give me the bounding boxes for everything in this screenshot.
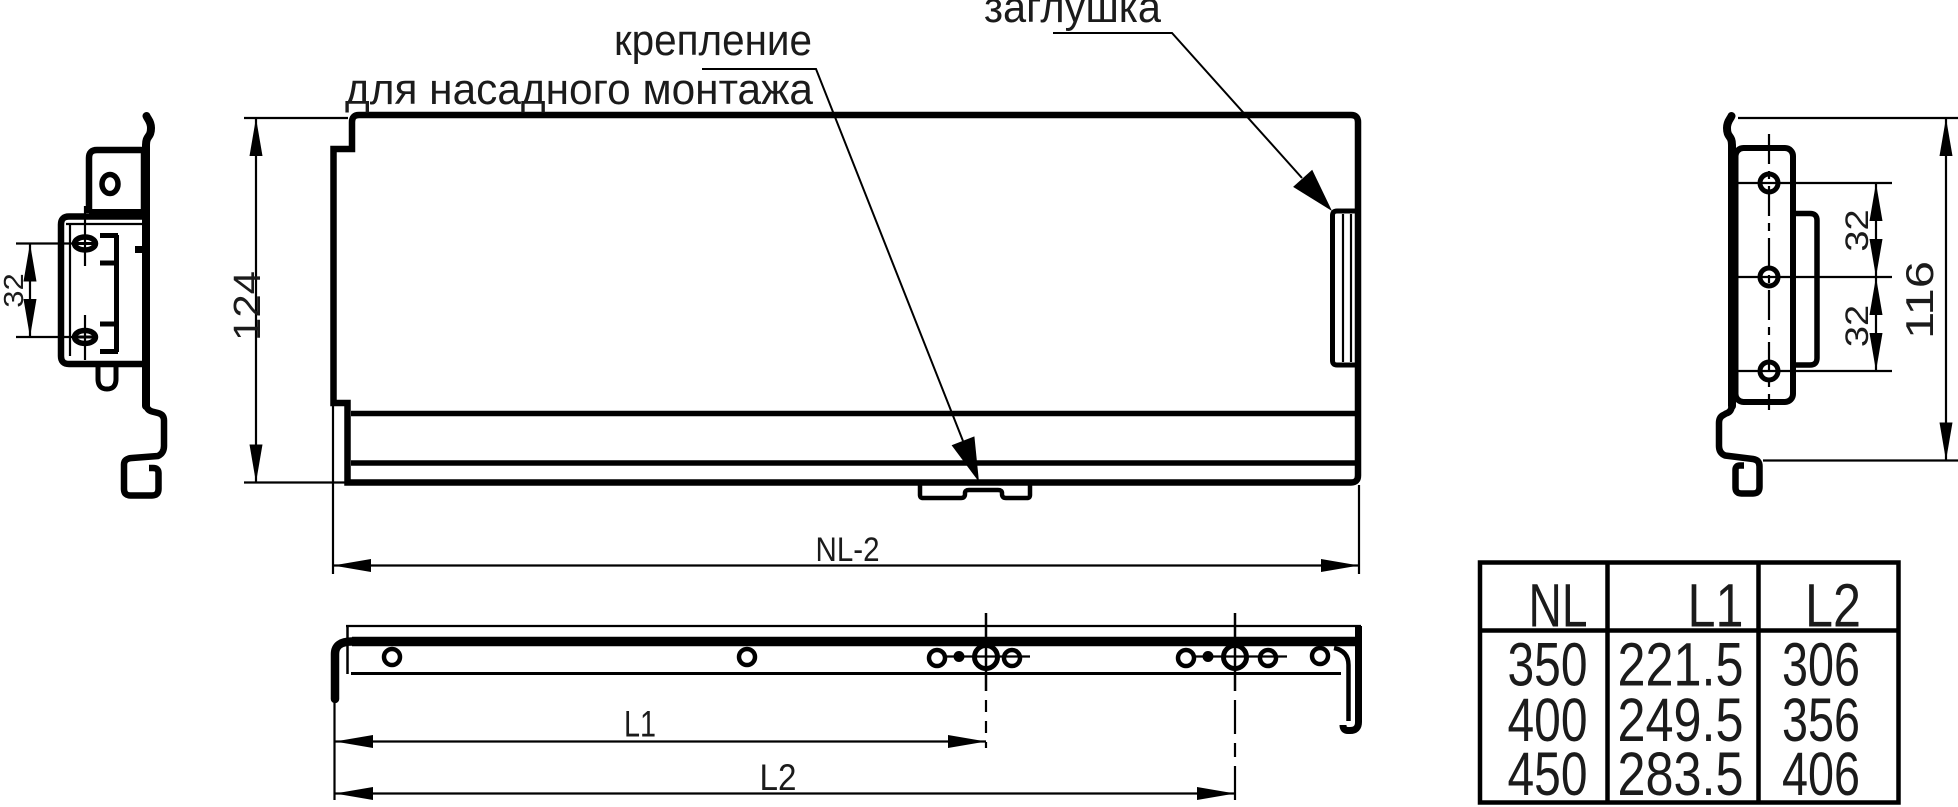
svg-text:450: 450	[1508, 740, 1588, 807]
svg-text:406: 406	[1782, 740, 1860, 807]
svg-text:116: 116	[1899, 261, 1942, 339]
svg-text:NL-2: NL-2	[816, 531, 880, 569]
svg-text:32: 32	[0, 273, 30, 307]
svg-text:L2: L2	[760, 757, 797, 798]
svg-text:32: 32	[1838, 209, 1875, 251]
svg-text:крепление: крепление	[614, 16, 812, 65]
svg-text:32: 32	[1838, 305, 1875, 347]
svg-text:L1: L1	[1688, 572, 1744, 640]
svg-text:124: 124	[227, 271, 269, 341]
svg-text:L2: L2	[1805, 572, 1861, 640]
svg-text:для насадного монтажа: для насадного монтажа	[345, 65, 814, 114]
svg-text:L1: L1	[624, 704, 656, 745]
svg-text:NL: NL	[1529, 572, 1588, 640]
svg-text:заглушка: заглушка	[984, 0, 1161, 32]
svg-text:283.5: 283.5	[1618, 740, 1744, 807]
